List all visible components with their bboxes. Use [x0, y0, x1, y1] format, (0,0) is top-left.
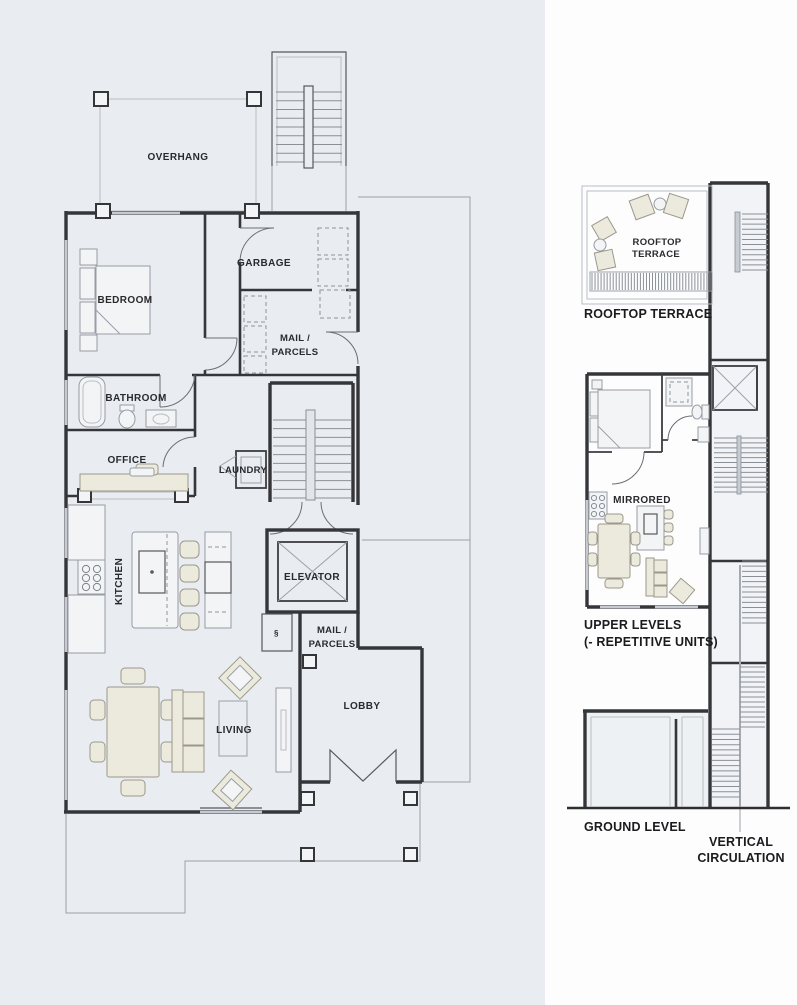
- chair: [90, 700, 105, 720]
- stool: [180, 613, 199, 630]
- faucet: [150, 570, 154, 574]
- stair-rail: [306, 410, 315, 500]
- tall-cabinet: [205, 532, 231, 628]
- chair: [631, 532, 640, 545]
- ground-level-caption: GROUND LEVEL: [584, 820, 686, 834]
- nightstand: [80, 249, 97, 265]
- rooftop-terrace-caption: ROOFTOP TERRACE: [584, 307, 712, 321]
- mirrored-label: MIRRORED: [613, 495, 671, 506]
- sofa-cushion: [183, 746, 204, 772]
- stool: [664, 523, 673, 532]
- mail-parcels-label: PARCELS: [272, 347, 319, 358]
- stool: [180, 565, 199, 582]
- desk-item: [130, 468, 154, 476]
- desk: [80, 474, 188, 491]
- elevator-label: ELEVATOR: [284, 572, 340, 583]
- chair: [121, 668, 145, 684]
- sink: [698, 427, 709, 442]
- intercom-icon: §: [274, 629, 279, 638]
- tv-console: [700, 528, 709, 554]
- bedroom-label: BEDROOM: [97, 295, 152, 306]
- chair: [121, 780, 145, 796]
- terrace-chair: [594, 249, 615, 270]
- headboard: [590, 418, 598, 442]
- sofa-cushion: [654, 560, 667, 572]
- mail-parcels-label: MAIL /: [280, 333, 310, 344]
- upper-levels-caption: (- REPETITIVE UNITS): [584, 635, 718, 649]
- counter: [68, 505, 105, 560]
- dining-table: [107, 687, 159, 777]
- chair: [605, 579, 623, 588]
- sofa-cushion: [654, 573, 667, 585]
- stool: [664, 536, 673, 545]
- chair: [90, 742, 105, 762]
- bathroom-label: BATHROOM: [105, 393, 166, 404]
- terrace-room-label: TERRACE: [632, 249, 680, 260]
- kitchen-island: [637, 506, 664, 550]
- headboard: [80, 268, 95, 299]
- office-label: OFFICE: [107, 455, 146, 466]
- mail-parcels-lobby-label: PARCELS: [309, 639, 356, 650]
- chair: [588, 532, 597, 545]
- terrace-table: [654, 198, 666, 210]
- lobby-label: LOBBY: [344, 701, 381, 712]
- porch-column: [404, 792, 417, 805]
- nightstand: [592, 380, 602, 389]
- toilet: [692, 405, 702, 419]
- vertical-circulation-label: CIRCULATION: [697, 851, 784, 865]
- terrace-room-label: ROOFTOP: [633, 237, 682, 248]
- garbage-label: GARBAGE: [237, 258, 291, 269]
- terrace-table: [594, 239, 606, 251]
- porch-column: [301, 792, 314, 805]
- stair-rail: [735, 212, 740, 272]
- tv-console: [276, 688, 291, 772]
- column: [94, 92, 108, 106]
- porch-column: [404, 848, 417, 861]
- nightstand: [80, 335, 97, 351]
- vertical-circulation-label: VERTICAL: [709, 835, 773, 849]
- living-label: LIVING: [216, 725, 252, 736]
- stair-rail: [737, 436, 741, 494]
- headboard: [80, 302, 95, 333]
- overhang-label: OVERHANG: [148, 152, 209, 163]
- sofa-cushion: [183, 719, 204, 745]
- chair: [588, 553, 597, 566]
- counter: [68, 595, 105, 653]
- stool: [664, 510, 673, 519]
- sofa-cushion: [654, 586, 667, 597]
- chair: [631, 553, 640, 566]
- sofa-back: [172, 690, 183, 772]
- laundry-label: LAUNDRY: [219, 465, 268, 476]
- architectural-drawing: OVERHANG: [0, 0, 797, 1005]
- stool: [180, 589, 199, 606]
- column: [303, 655, 316, 668]
- column: [245, 204, 259, 218]
- kitchen-label: KITCHEN: [114, 558, 125, 605]
- chair: [605, 514, 623, 523]
- sofa-back: [646, 558, 654, 596]
- upper-levels-caption: UPPER LEVELS: [584, 618, 682, 632]
- headboard: [590, 392, 598, 416]
- porch-column: [301, 848, 314, 861]
- stool: [180, 541, 199, 558]
- bed: [598, 390, 650, 448]
- column: [247, 92, 261, 106]
- toilet: [119, 410, 135, 428]
- mail-parcels-lobby-label: MAIL /: [317, 625, 347, 636]
- toilet-tank: [702, 405, 709, 419]
- column: [96, 204, 110, 218]
- sofa-cushion: [183, 692, 204, 718]
- dining-table: [598, 524, 630, 578]
